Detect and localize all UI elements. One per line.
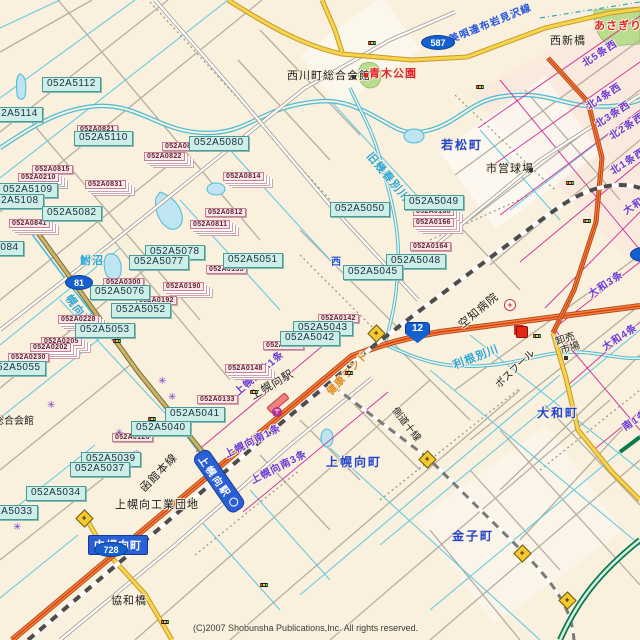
town-name: 若松町 <box>441 139 483 152</box>
mesh-code-label: 052A5042 <box>280 331 340 346</box>
poi-label: 上幌向工業団地 <box>115 500 199 512</box>
mesh-code-label: 052A5050 <box>330 202 390 217</box>
mesh-code-label-small: 052A0812 <box>205 208 246 217</box>
mesh-code-label-small: 052A0210 <box>18 173 59 182</box>
traffic-signal-icon <box>566 181 574 185</box>
mesh-code-label: 052A5108 <box>0 194 44 209</box>
traffic-signal-icon <box>368 41 376 45</box>
mesh-code-label: 052A5037 <box>70 462 130 477</box>
copyright-text: (C)2007 Shobunsha Publications,Inc. All … <box>193 623 418 633</box>
post-office-icon: 〒 <box>272 407 282 417</box>
traffic-signal-icon <box>250 390 258 394</box>
monument-icon: ✳ <box>47 401 55 411</box>
mesh-code-label: 052A5080 <box>189 136 249 151</box>
mesh-code-label: 052A5112 <box>42 77 101 92</box>
mesh-code-label-small: 052A0822 <box>144 152 185 161</box>
mesh-code-label-small: 052A0166 <box>413 218 454 227</box>
mesh-code-label-small: 052A0811 <box>190 220 230 229</box>
mesh-code-label-small: 052A0814 <box>223 172 264 181</box>
mesh-code-label: 052A5082 <box>42 206 102 221</box>
mesh-code-label: 052A5040 <box>131 421 191 436</box>
monument-icon: ✳ <box>168 393 176 403</box>
building-marker-icon <box>564 356 568 360</box>
traffic-signal-icon <box>161 620 169 624</box>
poi-label: 協和橋 <box>111 596 147 608</box>
mesh-code-label: 052A5041 <box>165 407 225 422</box>
mesh-code-label: 052A5034 <box>26 486 86 501</box>
traffic-signal-icon <box>260 583 268 587</box>
park-name: あさぎり公園 <box>594 21 640 33</box>
traffic-signal-icon <box>345 371 353 375</box>
park-marker-icon <box>364 73 368 77</box>
mesh-code-label-small: 052A0164 <box>410 242 451 251</box>
mesh-code-label-small: 052A0831 <box>85 180 126 189</box>
town-name: 金子町 <box>452 530 494 543</box>
poi-label: 西新橋 <box>550 36 586 48</box>
water-name: 鮒沼 <box>80 256 104 268</box>
traffic-signal-icon <box>533 334 541 338</box>
poi-label: 総合会館 <box>0 417 34 428</box>
poi-label: 西川町総合会館 <box>287 71 371 83</box>
mesh-code-label-small: 052A0190 <box>163 282 204 291</box>
mesh-code-label: 052A5055 <box>0 361 46 376</box>
monument-icon: ✳ <box>158 377 166 387</box>
mesh-code-label-small: 052A0202 <box>30 343 71 352</box>
poi-label: 市営球場 <box>486 164 534 176</box>
mesh-code-label: 052A5084 <box>0 241 24 256</box>
route-shield-81: 81 <box>65 275 93 290</box>
town-name: 上幌向町 <box>326 456 382 469</box>
mesh-code-label-small: 052A0133 <box>197 395 238 404</box>
mesh-code-label: 052A5076 <box>90 285 150 300</box>
shopping-center-icon <box>516 326 528 338</box>
mesh-code-label-small: 052A0148 <box>225 364 266 373</box>
train-icon <box>227 496 240 509</box>
monument-icon: ✳ <box>13 523 21 533</box>
mesh-code-label: 052A5110 <box>74 131 133 146</box>
building-marker-icon <box>352 75 356 79</box>
park-name: 青木公園 <box>369 69 417 81</box>
mesh-code-label: 052A5051 <box>223 253 283 268</box>
mesh-code-label: 052A5049 <box>404 195 464 210</box>
traffic-signal-icon <box>113 339 121 343</box>
traffic-signal-icon <box>476 85 484 89</box>
mesh-code-label: 052A5114 <box>0 107 43 122</box>
building-marker-icon <box>529 168 533 172</box>
traffic-signal-icon <box>583 219 591 223</box>
mesh-code-label: 052A5033 <box>0 505 38 520</box>
mesh-code-label: 052A5052 <box>111 303 171 318</box>
route-shield-728: 728 <box>94 542 128 557</box>
hospital-icon: + <box>504 299 516 311</box>
map-canvas[interactable]: (C)2007 Shobunsha Publications,Inc. All … <box>0 0 640 640</box>
mesh-code-label: 052A5045 <box>343 265 403 280</box>
mesh-code-label: 052A5053 <box>75 323 135 338</box>
road-name: 西 <box>331 258 342 269</box>
town-name: 大和町 <box>537 407 579 420</box>
route-shield-587: 587 <box>421 35 455 50</box>
mesh-code-label: 052A5077 <box>129 255 189 270</box>
